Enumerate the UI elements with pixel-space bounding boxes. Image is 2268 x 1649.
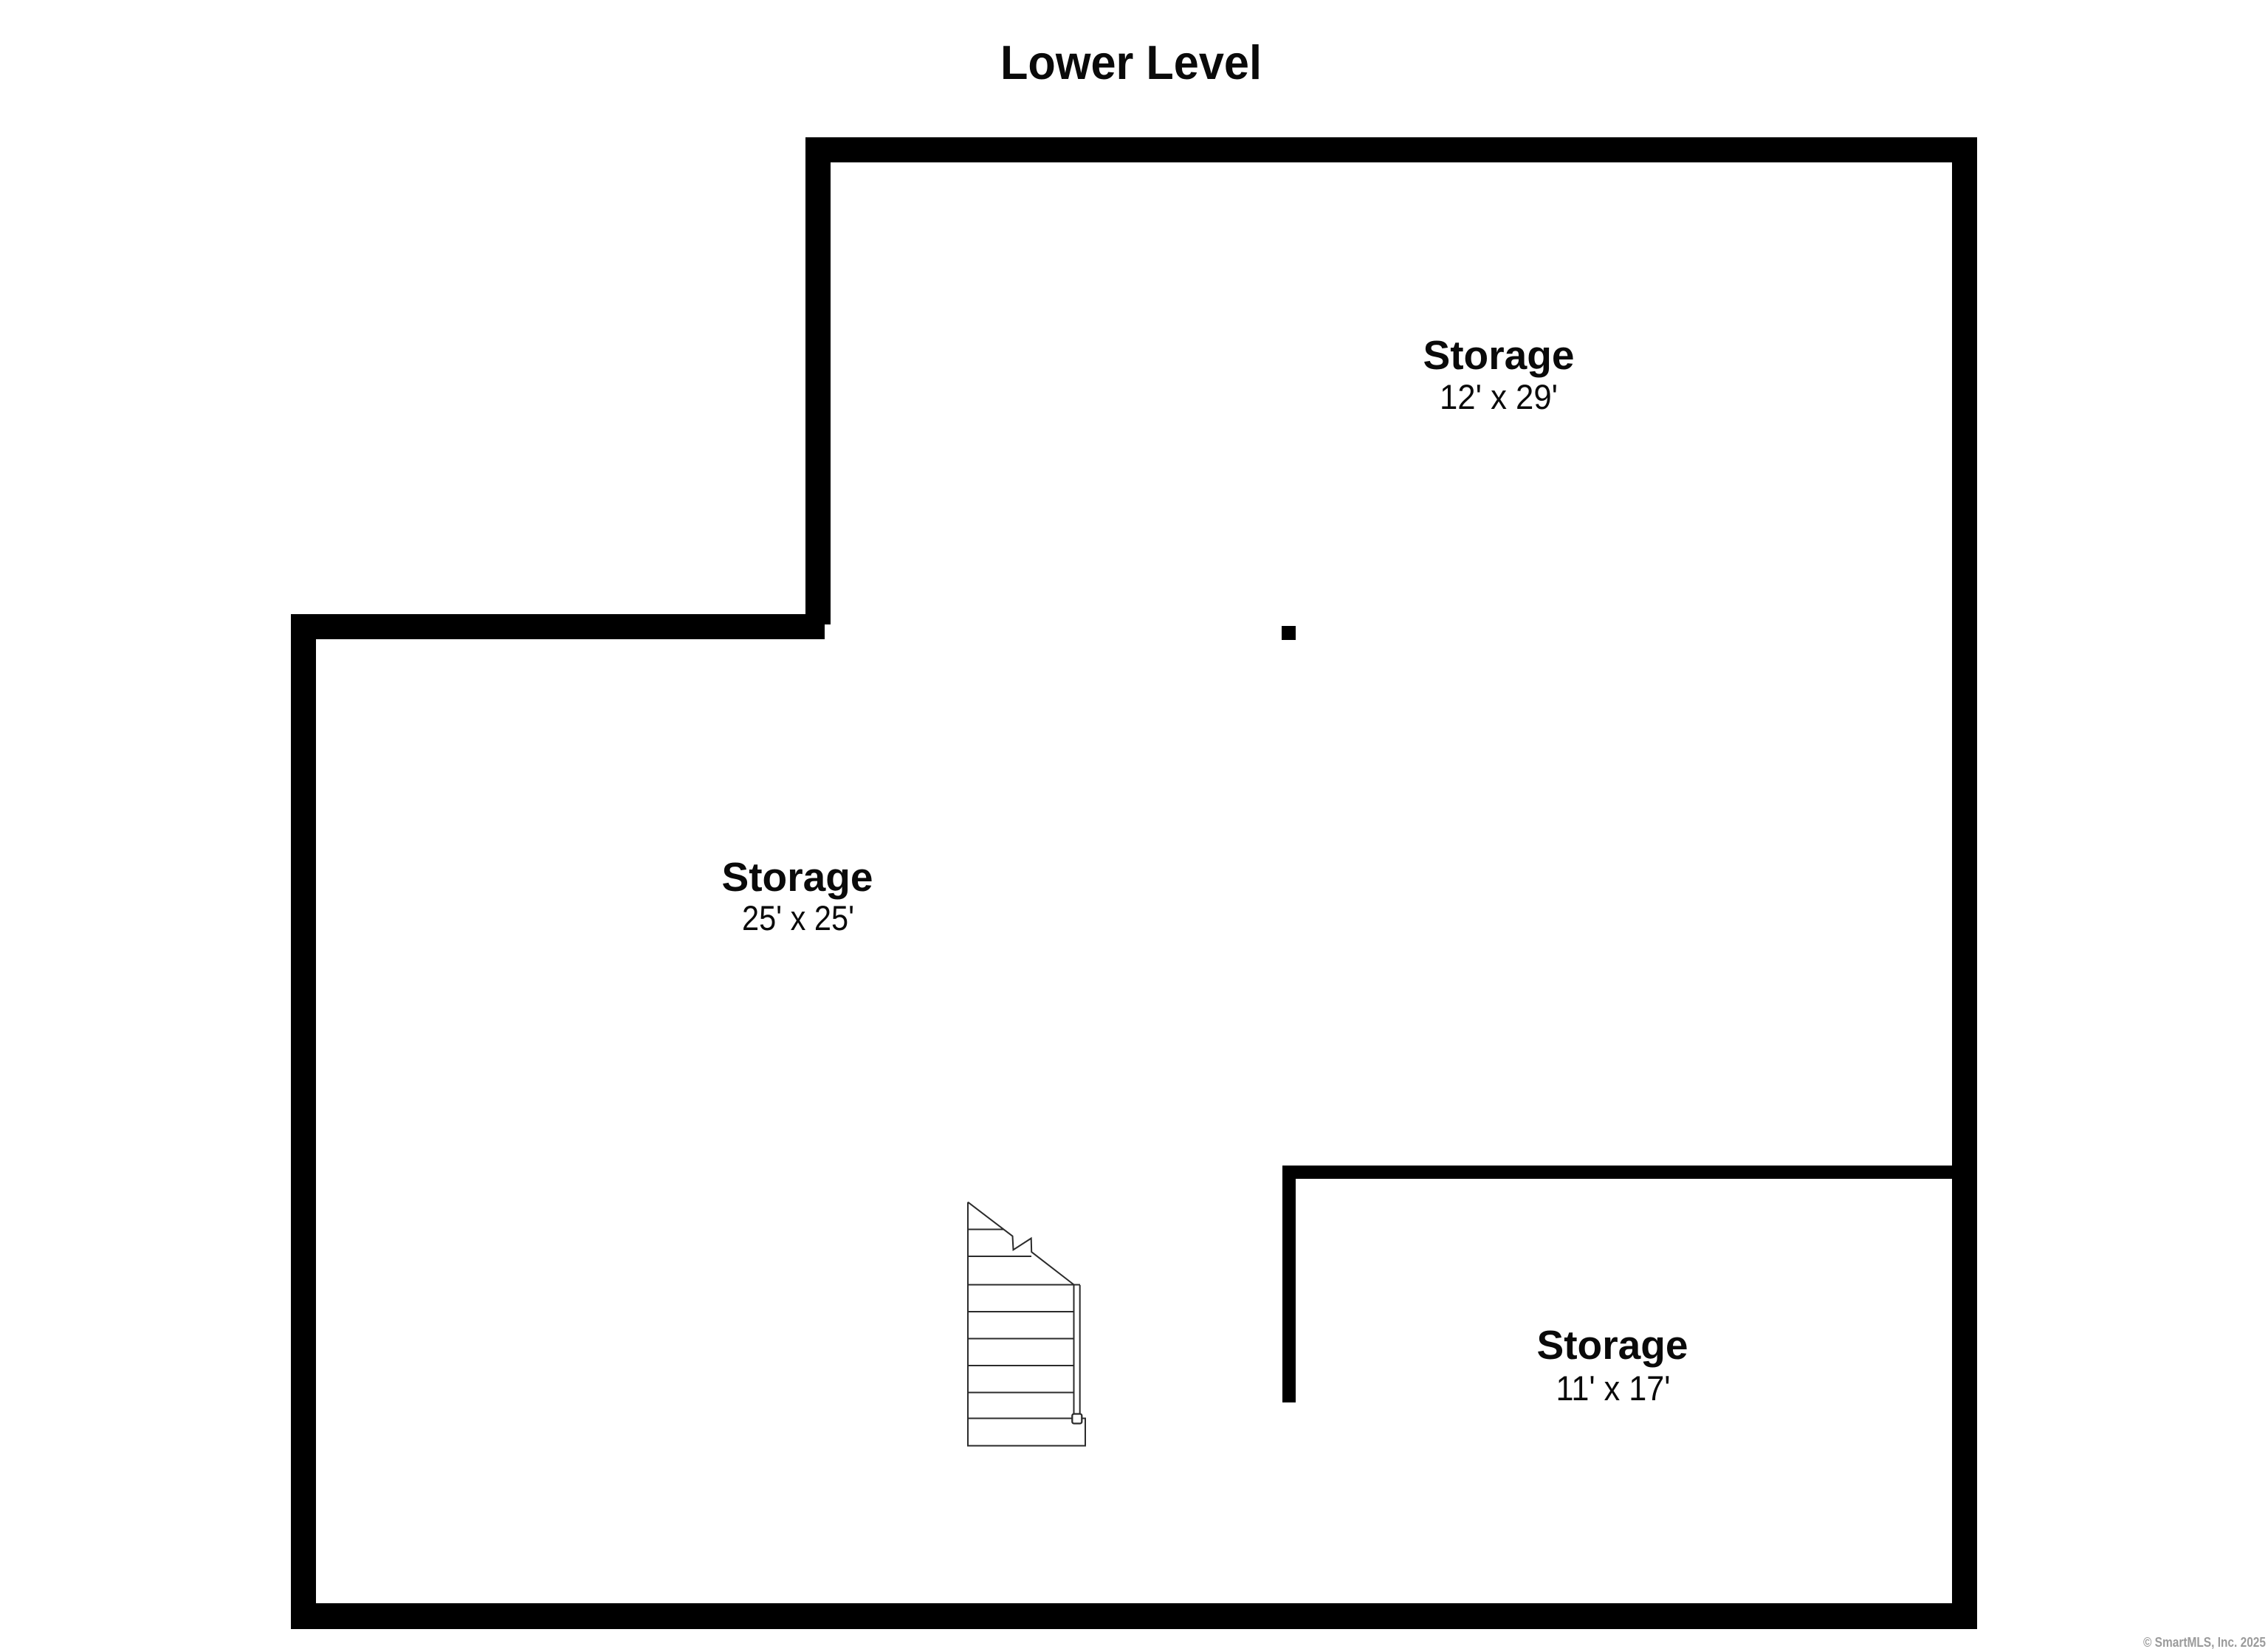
svg-text:© SmartMLS, Inc. 2025: © SmartMLS, Inc. 2025 — [2143, 1634, 2266, 1649]
svg-text:11' x 17': 11' x 17' — [1556, 1369, 1671, 1408]
svg-text:25' x 25': 25' x 25' — [742, 898, 854, 937]
svg-text:Storage: Storage — [1423, 332, 1575, 378]
svg-text:12' x 29': 12' x 29' — [1440, 377, 1558, 416]
svg-text:Lower Level: Lower Level — [1000, 35, 1262, 89]
svg-text:Storage: Storage — [722, 854, 873, 900]
svg-text:Storage: Storage — [1537, 1322, 1688, 1368]
